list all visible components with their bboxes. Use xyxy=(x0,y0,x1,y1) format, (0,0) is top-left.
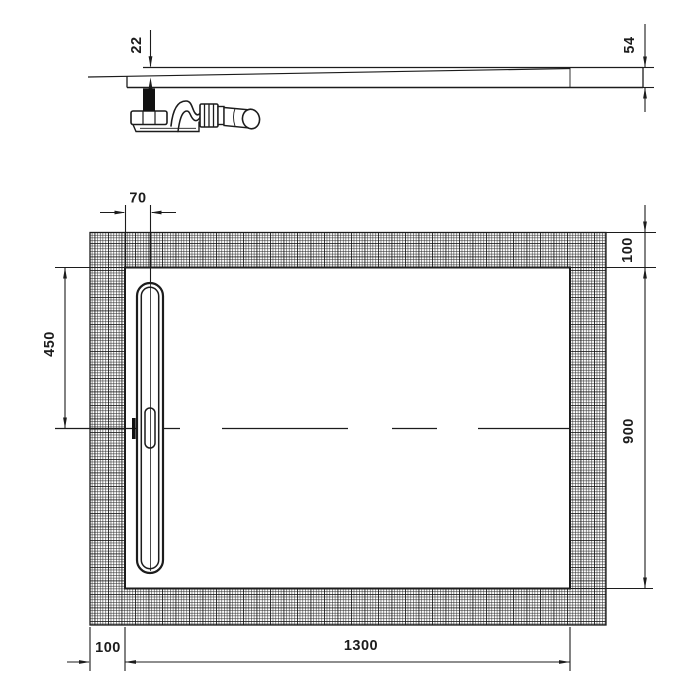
arrowhead-up xyxy=(149,78,153,89)
linear-drain-channel xyxy=(137,283,163,573)
arrowhead-up xyxy=(643,88,647,99)
drain-tailpipe xyxy=(143,89,155,112)
technical-drawing: 22 54 xyxy=(0,0,700,700)
arrowhead-left xyxy=(125,660,136,664)
pipe-collar xyxy=(218,107,224,125)
technical-drawing-canvas: 22 54 xyxy=(0,0,700,700)
dimension-bottom-side: 100 1300 xyxy=(67,627,570,671)
dim-label-22: 22 xyxy=(129,36,145,53)
dim-label-450: 450 xyxy=(42,331,58,357)
dim-label-100-top: 100 xyxy=(620,237,636,263)
dim-label-1300: 1300 xyxy=(344,638,378,654)
dim-label-70: 70 xyxy=(129,191,146,207)
plan-view: 70 450 100 900 xyxy=(42,191,656,672)
arrowhead-up xyxy=(643,268,647,279)
side-view-section: 22 54 xyxy=(88,24,654,132)
arrowhead-down xyxy=(63,418,67,429)
dim-label-900: 900 xyxy=(621,418,637,444)
arrowhead-up xyxy=(63,268,67,279)
arrowhead-down xyxy=(149,56,153,67)
dimension-depth-at-drain: 22 xyxy=(129,30,152,89)
tray-sloped-floor-line xyxy=(88,69,570,78)
arrowhead-right xyxy=(115,211,126,215)
drain-trap-assembly xyxy=(131,89,261,132)
arrowhead-down2 xyxy=(643,578,647,589)
trap-flange xyxy=(131,111,167,125)
dim-label-100-bottom: 100 xyxy=(95,640,121,656)
dim-label-54: 54 xyxy=(622,36,638,53)
arrowhead-down xyxy=(643,222,647,233)
arrowhead-right xyxy=(79,660,90,664)
centerline-tick xyxy=(132,418,136,439)
drain-centerline xyxy=(55,418,569,439)
arrowhead-down xyxy=(643,57,647,68)
arrowhead-right2 xyxy=(559,660,570,664)
drain-outlet xyxy=(145,408,155,448)
arrowhead-left xyxy=(151,211,162,215)
